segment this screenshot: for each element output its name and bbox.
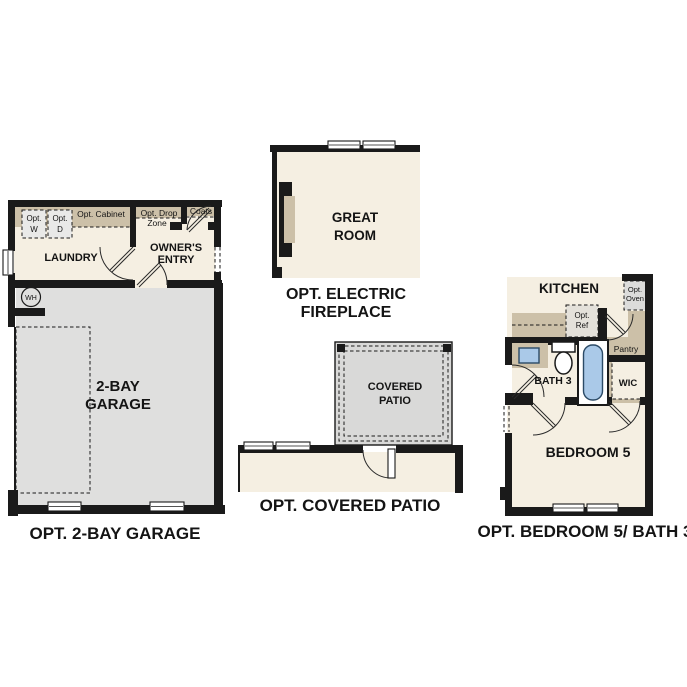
- owners-entry-label-2: ENTRY: [158, 254, 196, 266]
- wic-label: WIC: [619, 378, 638, 389]
- bedroom5-label: BEDROOM 5: [546, 444, 631, 460]
- floorplan-svg: WH Opt. W Opt. D Opt. Cabinet Opt. Drop …: [0, 0, 687, 687]
- fireplace-caption-1: OPT. ELECTRIC: [286, 286, 406, 303]
- floorplan-page: WH Opt. W Opt. D Opt. Cabinet Opt. Drop …: [0, 0, 687, 687]
- opt-ref-label-1: Opt.: [574, 311, 589, 320]
- plan-garage: WH Opt. W Opt. D Opt. Cabinet Opt. Drop …: [3, 200, 225, 543]
- covered-patio-label-1: COVERED: [368, 381, 422, 393]
- great-room-label-1: GREAT: [332, 210, 379, 225]
- patio-deck: [335, 342, 452, 445]
- patio-post-left: [337, 344, 345, 352]
- patio-interior-floor: [239, 452, 457, 492]
- opt-ref-label-2: Ref: [576, 321, 589, 330]
- pantry-label: Pantry: [614, 344, 639, 354]
- great-room-window-left: [328, 141, 360, 149]
- opt-w-label-2: W: [30, 225, 38, 234]
- great-room-window-right: [363, 141, 395, 149]
- owners-entry-label-1: OWNER'S: [150, 242, 202, 254]
- garage-label-2: GARAGE: [85, 396, 151, 413]
- bath3-sink-counter: [512, 343, 548, 368]
- fireplace-caption-2: FIREPLACE: [301, 304, 392, 321]
- opt-d-label-2: D: [57, 225, 63, 234]
- patio-window-left: [244, 442, 273, 450]
- plan-fireplace: GREAT ROOM OPT. ELECTRIC FIREPLACE: [270, 141, 420, 321]
- opt-oven-label-1: Opt.: [628, 285, 642, 294]
- opt-d-label-1: Opt.: [52, 214, 67, 223]
- bedroom5-window-left: [553, 504, 584, 512]
- opt-w-label-1: Opt.: [26, 214, 41, 223]
- coats-label: Coats: [190, 206, 212, 216]
- patio-caption: OPT. COVERED PATIO: [260, 496, 441, 515]
- owners-entry-wall-opening: [215, 247, 220, 272]
- plan-patio: COVERED PATIO OPT. COVERED PATIO: [238, 342, 463, 515]
- opt-drop-label-2: Zone: [147, 218, 167, 228]
- opt-drop-label-1: Opt. Drop: [141, 208, 178, 218]
- water-heater-label: WH: [25, 295, 37, 302]
- bedroom5-window-right: [587, 504, 618, 512]
- laundry-window: [3, 250, 13, 275]
- bedroom5-caption: OPT. BEDROOM 5/ BATH 3: [477, 522, 687, 541]
- bath3-tub: [578, 340, 608, 405]
- patio-post-right: [443, 344, 451, 352]
- garage-door-window-left: [48, 502, 81, 511]
- great-room-label-2: ROOM: [334, 228, 376, 243]
- opt-oven-label-2: Oven: [626, 294, 644, 303]
- water-heater-circle: WH: [22, 288, 41, 307]
- garage-caption: OPT. 2-BAY GARAGE: [30, 524, 201, 543]
- bath3-sink: [519, 348, 539, 363]
- patio-window-right: [276, 442, 310, 450]
- bath3-label: BATH 3: [534, 375, 571, 387]
- kitchen-label: KITCHEN: [539, 281, 599, 296]
- covered-patio-label-2: PATIO: [379, 395, 411, 407]
- opt-cabinet-label: Opt. Cabinet: [77, 209, 125, 219]
- plan-bedroom5: KITCHEN Opt. Ref Opt. Oven Pantry BATH 3…: [477, 274, 687, 541]
- garage-door-window-right: [150, 502, 184, 511]
- garage-label-1: 2-BAY: [96, 378, 140, 395]
- laundry-label: LAUNDRY: [44, 252, 98, 264]
